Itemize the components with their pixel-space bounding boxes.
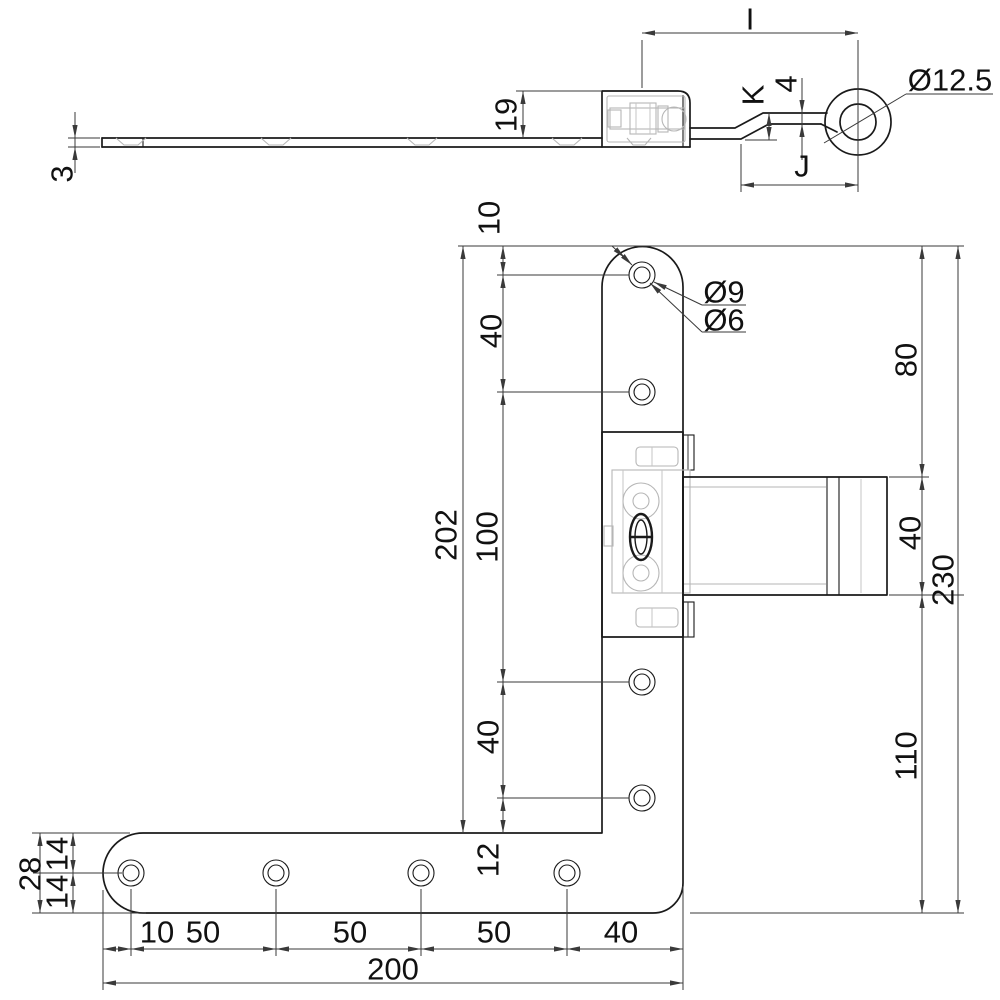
side-view: I K 4 J Ø12.5 19 3 <box>45 2 994 193</box>
countersink-mark <box>261 138 291 145</box>
dim-label-50-1: 50 <box>186 915 220 950</box>
brand-logo <box>630 514 652 560</box>
dim-label-14-bottom: 14 <box>40 875 75 909</box>
hinge-drawing: I K 4 J Ø12.5 19 3 <box>0 0 1000 1000</box>
dim-label-40-arm: 40 <box>893 516 928 550</box>
drawing-sheet: I K 4 J Ø12.5 19 3 <box>0 0 1000 1000</box>
hole-mid-1 <box>629 669 655 695</box>
hole-mid-2 <box>629 785 655 811</box>
dim-label-3: 3 <box>45 165 80 182</box>
pivot-arm-front <box>683 477 887 595</box>
hole-bottom-4 <box>554 860 580 886</box>
mounting-holes <box>118 262 655 886</box>
dim-label-19: 19 <box>489 98 524 132</box>
dim-label-80: 80 <box>889 343 924 377</box>
dim-label-200: 200 <box>367 952 419 987</box>
side-view-dimensions: I K 4 J Ø12.5 19 3 <box>45 2 994 193</box>
countersink-mark <box>552 138 582 145</box>
dim-label-J: J <box>794 149 810 184</box>
hole-bottom-2 <box>263 860 289 886</box>
cranked-arm-side <box>690 89 891 155</box>
hole-top-2 <box>629 379 655 405</box>
dim-label-10-top: 10 <box>472 201 507 235</box>
dim-label-40-bottom: 40 <box>604 915 638 950</box>
front-view: 10 40 202 100 40 12 Ø9 Ø6 80 40 230 110 … <box>13 201 965 990</box>
dim-label-202: 202 <box>429 509 464 561</box>
dim-label-110: 110 <box>889 731 924 780</box>
hole-bottom-3 <box>408 860 434 886</box>
dim-label-I: I <box>746 2 755 37</box>
dim-label-4: 4 <box>769 75 804 92</box>
dim-label-50-3: 50 <box>477 915 511 950</box>
hidden-mechanism-side <box>607 96 686 145</box>
hinge-block-side <box>602 91 690 147</box>
dim-label-100: 100 <box>470 511 505 563</box>
dim-label-eye-diameter: Ø12.5 <box>908 63 992 98</box>
dim-label-12: 12 <box>471 843 506 877</box>
l-plate-outline <box>103 247 683 913</box>
dim-label-10-bottom: 10 <box>140 915 174 950</box>
dim-label-40-upper: 40 <box>474 314 509 348</box>
hinge-block-front <box>602 432 694 637</box>
dim-label-14-top: 14 <box>40 837 75 871</box>
countersink-mark <box>116 138 146 145</box>
dia-label-6: Ø6 <box>703 303 744 338</box>
countersink-mark <box>407 138 437 145</box>
dim-label-40-lower: 40 <box>471 720 506 754</box>
dim-label-50-2: 50 <box>333 915 367 950</box>
dim-label-230: 230 <box>926 554 961 606</box>
dim-label-K: K <box>736 84 771 105</box>
